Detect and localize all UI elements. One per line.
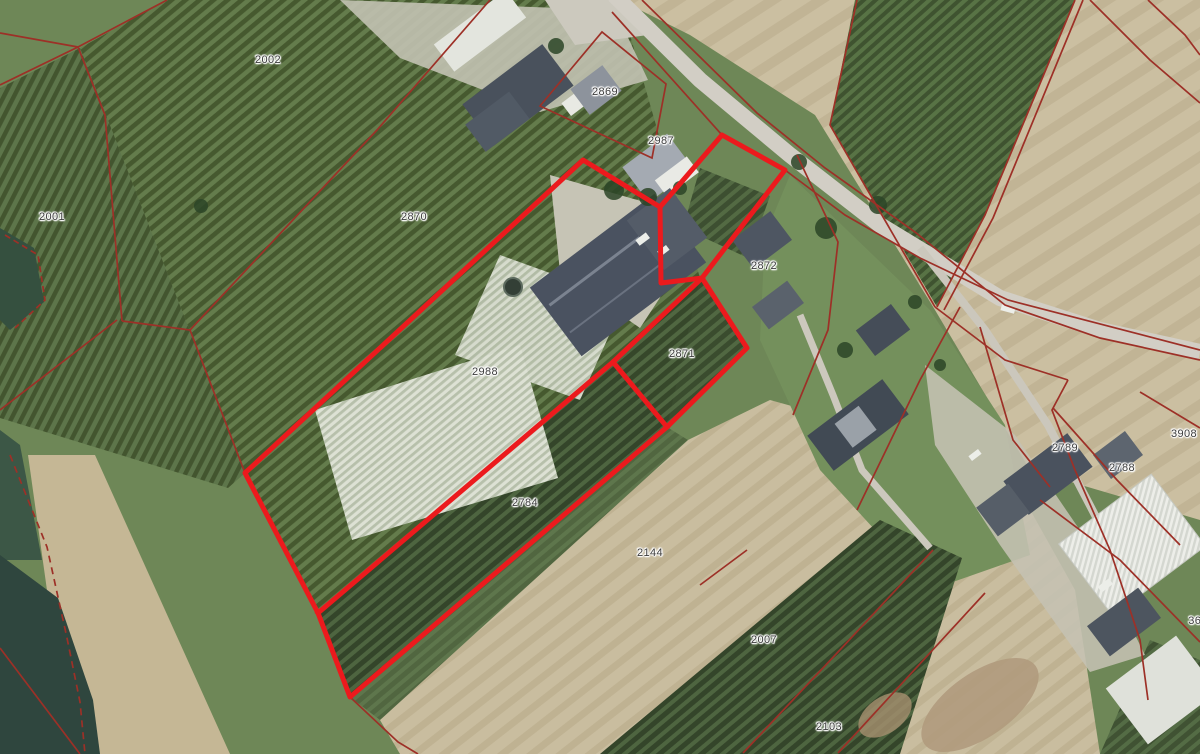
- map-canvas[interactable]: 2002 2001 2870 2869 2987 2872 2871 2988 …: [0, 0, 1200, 754]
- aerial-imagery: [0, 0, 1200, 754]
- tank: [504, 278, 522, 296]
